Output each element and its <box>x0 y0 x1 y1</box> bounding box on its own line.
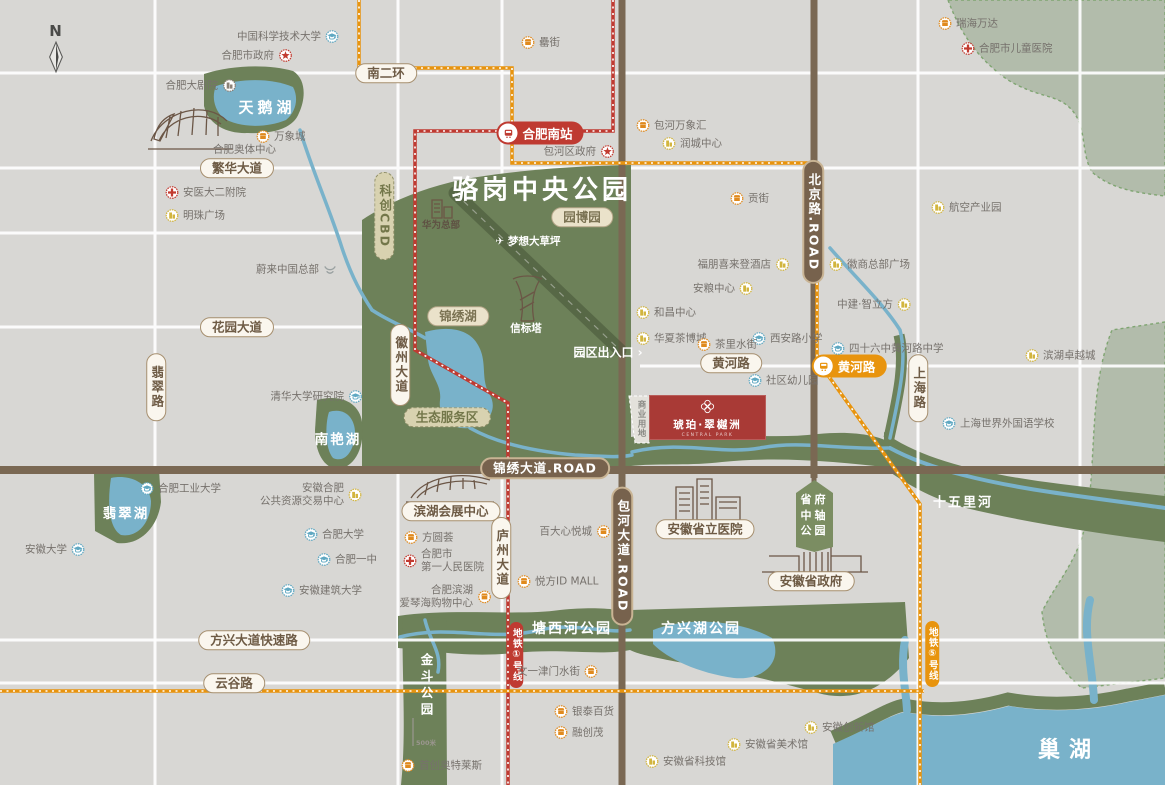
mall-icon <box>517 574 531 588</box>
poi: 罍街 <box>521 35 560 50</box>
mall-icon <box>404 530 418 544</box>
poi-label: 蔚来中国总部 <box>256 262 319 277</box>
mall-icon <box>938 16 952 30</box>
nio-icon <box>323 262 337 276</box>
poi: 银泰百货 <box>554 704 614 719</box>
poi: 合肥市儿童医院 <box>961 41 1053 56</box>
road-label: 安徽省立医院 <box>655 519 754 539</box>
poi: 航空产业园 <box>931 200 1002 215</box>
shield-line: 中轴 <box>801 509 829 524</box>
road-label: 黄河路 <box>700 353 762 373</box>
school-icon <box>348 389 362 403</box>
biz-icon <box>636 305 650 319</box>
poi-label: 航空产业园 <box>949 200 1002 215</box>
poi: 西安路小学 <box>752 331 823 346</box>
poi: 茶里水街 <box>697 337 757 352</box>
project-name: 琥珀·翠樾洲 <box>673 417 742 432</box>
poi: 百大心悦城 <box>540 524 611 539</box>
biz-icon <box>636 331 650 345</box>
poi: 蔚来中国总部 <box>256 262 337 277</box>
poi-label: 贡街 <box>748 191 769 206</box>
mall-icon <box>554 704 568 718</box>
gov-icon <box>278 48 292 62</box>
biz-icon <box>897 297 911 311</box>
school-icon <box>942 416 956 430</box>
project-marker: 琥珀·翠樾洲 CENTRAL PARK <box>649 395 766 440</box>
theater-icon <box>222 78 236 92</box>
poi: 合肥工业大学 <box>140 481 221 496</box>
road-label: 锦绣大道.ROAD <box>480 457 610 479</box>
metro-line-5-capsule: 地铁⑤号线 <box>925 621 939 687</box>
mall-icon <box>554 725 568 739</box>
location-map: N 省府 中轴 公园 合肥南站 黄河路 地铁①号线 地铁⑤号线 <box>0 0 1165 785</box>
school-icon <box>71 542 85 556</box>
area-label: 园区出入口 › <box>573 344 642 361</box>
poi: 安医大二附院 <box>165 185 246 200</box>
poi-label: 润城中心 <box>680 136 722 151</box>
poi: 福朋喜来登酒店 <box>698 257 790 272</box>
biz-icon <box>727 737 741 751</box>
poi-label: 安医大二附院 <box>183 185 246 200</box>
poi-label: 安徽大学 <box>25 542 67 557</box>
area-label: 商业用地 <box>635 400 647 438</box>
poi-label: 安徽合肥公共资源交易中心 <box>260 482 344 508</box>
biz-icon <box>829 257 843 271</box>
road-label: 南二环 <box>355 63 417 83</box>
biz-icon <box>775 257 789 271</box>
area-label: 南艳湖 <box>315 428 362 448</box>
poi-label: 安徽建筑大学 <box>299 583 362 598</box>
road-label: 滨湖会展中心 <box>401 501 500 521</box>
road-label: 生态服务区 <box>404 407 491 427</box>
poi: 融创茂 <box>554 725 604 740</box>
poi-label: 合肥工业大学 <box>158 481 221 496</box>
road-label: 包河大道.ROAD <box>611 487 633 626</box>
station-label: 合肥南站 <box>522 124 572 143</box>
poi: 华夏茶博城 <box>636 331 707 346</box>
poi-label: 福朋喜来登酒店 <box>698 257 772 272</box>
mall-icon <box>697 337 711 351</box>
road-label: 上海路 <box>908 354 928 422</box>
area-label: 华为总部 <box>422 217 460 231</box>
area-label: 信标塔 <box>510 321 542 336</box>
poi-label: 安徽省美术馆 <box>745 737 808 752</box>
biz-icon <box>739 281 753 295</box>
province-axis-park-shield: 省府 中轴 公园 <box>796 480 833 552</box>
poi: 安徽大学 <box>25 542 85 557</box>
poi-label: 合肥大学 <box>322 527 364 542</box>
station-label: 黄河路 <box>838 357 876 376</box>
mall-icon <box>636 118 650 132</box>
poi: 中建·智立方 <box>837 297 911 312</box>
poi-label: 方圆荟 <box>422 530 454 545</box>
poi-label: 安徽省科技馆 <box>663 754 726 769</box>
school-icon <box>748 373 762 387</box>
train-icon <box>498 124 517 143</box>
poi: 徽商总部广场 <box>829 257 910 272</box>
label-layer: N 省府 中轴 公园 合肥南站 黄河路 地铁①号线 地铁⑤号线 <box>0 0 1165 785</box>
poi-label: 融创茂 <box>572 725 604 740</box>
road-label: 翡翠路 <box>146 353 166 421</box>
area-label: 塘西河公园 <box>532 618 612 638</box>
road-label: 徽州大道 <box>390 324 410 406</box>
poi-label: 合肥市第一人民医院 <box>421 548 484 574</box>
poi: 贡街 <box>730 191 769 206</box>
poi-label: 万象城 <box>274 129 306 144</box>
road-label: 花园大道 <box>200 317 274 337</box>
poi: 合肥大学 <box>304 527 364 542</box>
poi: 社区幼儿园 <box>748 373 819 388</box>
poi-label: 百大心悦城 <box>540 524 593 539</box>
biz-icon <box>1025 348 1039 362</box>
poi-label: 中国科学技术大学 <box>237 29 321 44</box>
road-label: 云谷路 <box>203 673 265 693</box>
poi: 合肥奥体中心 <box>213 142 276 157</box>
school-icon <box>317 552 331 566</box>
biz-icon <box>645 754 659 768</box>
project-tagline: CENTRAL PARK <box>682 433 734 438</box>
compass-n-label: N <box>38 22 74 40</box>
poi-label: 和昌中心 <box>654 305 696 320</box>
poi: 上海世界外国语学校 <box>942 416 1055 431</box>
hosp-icon <box>961 41 975 55</box>
area-label: 巢湖 <box>1038 732 1100 764</box>
area-label: 天鹅湖 <box>238 97 295 118</box>
area-label: 500米 <box>416 737 436 747</box>
huanghe-road-station-badge: 黄河路 <box>812 355 887 378</box>
poi-label: 社区幼儿园 <box>766 373 819 388</box>
poi-label: 合肥市儿童医院 <box>979 41 1053 56</box>
poi-label: 茶里水街 <box>715 337 757 352</box>
road-label: 园博园 <box>551 207 613 227</box>
poi: 安粮中心 <box>693 281 753 296</box>
area-label: 骆岗中央公园 <box>452 170 632 207</box>
school-icon <box>281 583 295 597</box>
poi: 悦方ID MALL <box>517 574 598 589</box>
school-icon <box>304 527 318 541</box>
poi-label: 银泰百货 <box>572 704 614 719</box>
school-icon <box>140 481 154 495</box>
poi: 首创奥特莱斯 <box>401 758 482 773</box>
poi: 合肥大剧院 <box>166 78 237 93</box>
road-label: 安徽省政府 <box>768 571 855 591</box>
poi: 安徽合肥公共资源交易中心 <box>260 482 362 508</box>
road-label: 庐州大道 <box>491 517 511 599</box>
poi: 安徽创新馆 <box>804 720 875 735</box>
school-icon <box>325 29 339 43</box>
poi: 安徽省美术馆 <box>727 737 808 752</box>
poi-label: 悦方ID MALL <box>535 574 598 589</box>
road-label: 锦绣湖 <box>427 306 489 326</box>
road-label: 北京路.ROAD <box>802 160 824 284</box>
poi-label: 清华大学研究院 <box>271 389 345 404</box>
poi-label: 包河万象汇 <box>654 118 707 133</box>
poi: 明珠广场 <box>165 208 225 223</box>
poi: 合肥滨湖爱琴海购物中心 <box>400 584 492 610</box>
poi: 瑞海万达 <box>938 16 998 31</box>
area-label: 方兴湖公园 <box>661 618 741 638</box>
area-label: 十五里河 <box>933 492 993 511</box>
poi: 合肥市第一人民医院 <box>403 548 484 574</box>
poi: 文一津门水街 <box>517 664 598 679</box>
project-emblem-icon <box>699 398 716 415</box>
poi-label: 合肥市政府 <box>222 48 275 63</box>
area-label: 金斗公园 <box>417 653 436 719</box>
poi: 清华大学研究院 <box>271 389 363 404</box>
road-label: 繁华大道 <box>200 158 274 178</box>
poi: 安徽建筑大学 <box>281 583 362 598</box>
hosp-icon <box>403 554 417 568</box>
poi: 滨湖卓越城 <box>1025 348 1096 363</box>
poi-label: 安粮中心 <box>693 281 735 296</box>
poi-label: 瑞海万达 <box>956 16 998 31</box>
mall-icon <box>401 758 415 772</box>
area-label: 翡翠湖 <box>103 502 150 522</box>
biz-icon <box>931 200 945 214</box>
poi: 方圆荟 <box>404 530 454 545</box>
poi: 包河区政府 <box>544 144 615 159</box>
biz-icon <box>662 136 676 150</box>
poi: 合肥市政府 <box>222 48 293 63</box>
school-icon <box>831 341 845 355</box>
poi-label: 徽商总部广场 <box>847 257 910 272</box>
poi-label: 合肥滨湖爱琴海购物中心 <box>400 584 474 610</box>
poi: 四十六中黄河路中学 <box>831 341 944 356</box>
poi: 包河万象汇 <box>636 118 707 133</box>
biz-icon <box>804 720 818 734</box>
mall-icon <box>521 35 535 49</box>
poi: 合肥一中 <box>317 552 377 567</box>
biz-icon <box>165 208 179 222</box>
mall-icon <box>477 590 491 604</box>
poi-label: 上海世界外国语学校 <box>960 416 1055 431</box>
poi-label: 包河区政府 <box>544 144 597 159</box>
poi-label: 明珠广场 <box>183 208 225 223</box>
poi-label: 文一津门水街 <box>517 664 580 679</box>
poi: 和昌中心 <box>636 305 696 320</box>
road-label: 方兴大道快速路 <box>198 630 310 650</box>
hosp-icon <box>165 185 179 199</box>
area-label: ✈ 梦想大草坪 <box>496 234 561 249</box>
hefei-south-station-badge: 合肥南站 <box>496 122 583 145</box>
poi-label: 中建·智立方 <box>837 297 893 312</box>
poi: 安徽省科技馆 <box>645 754 726 769</box>
poi-label: 合肥一中 <box>335 552 377 567</box>
poi-label: 安徽创新馆 <box>822 720 875 735</box>
compass: N <box>38 22 74 78</box>
poi-label: 罍街 <box>539 35 560 50</box>
poi: 中国科学技术大学 <box>237 29 339 44</box>
mall-icon <box>730 191 744 205</box>
poi-label: 四十六中黄河路中学 <box>849 341 944 356</box>
gov-icon <box>600 144 614 158</box>
mall-icon <box>584 664 598 678</box>
poi: 润城中心 <box>662 136 722 151</box>
poi-label: 合肥奥体中心 <box>213 142 276 157</box>
mall-icon <box>596 524 610 538</box>
road-label: 科创CBD <box>374 172 394 260</box>
compass-needle-icon <box>41 40 71 74</box>
poi-label: 西安路小学 <box>770 331 823 346</box>
shield-line: 省府 <box>801 493 829 508</box>
poi-label: 合肥大剧院 <box>166 78 219 93</box>
shield-line: 公园 <box>801 524 829 539</box>
biz-icon <box>348 488 362 502</box>
poi-label: 滨湖卓越城 <box>1043 348 1096 363</box>
poi-label: 首创奥特莱斯 <box>419 758 482 773</box>
